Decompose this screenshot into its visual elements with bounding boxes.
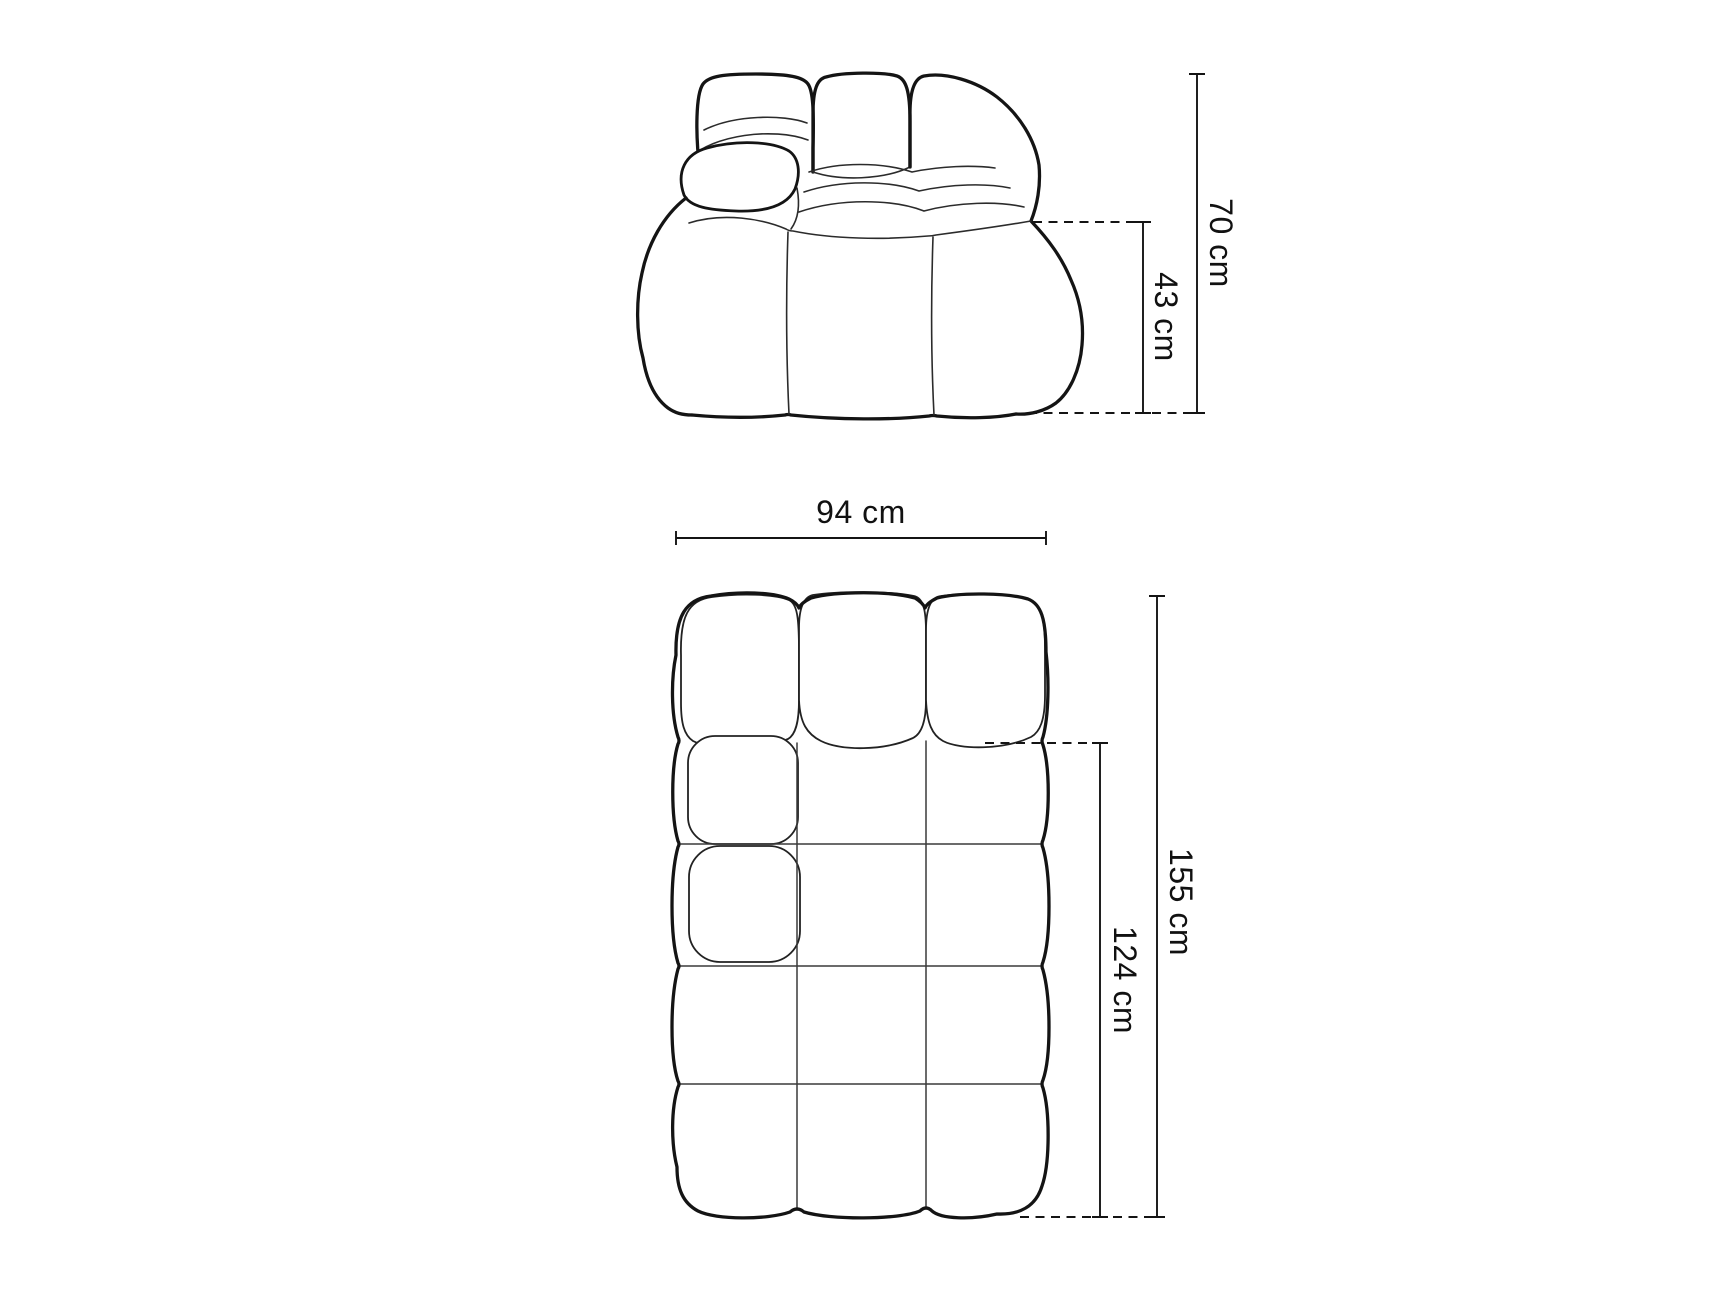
dimension-line-70: [1189, 74, 1205, 413]
dimension-label-70cm: 70 cm: [1203, 198, 1239, 288]
back-cushion-middle: [813, 73, 910, 172]
dimension-drawing: 70 cm 43 cm 94 cm: [0, 0, 1732, 1299]
dimension-line-155: [1149, 596, 1165, 1217]
seat-roll-2: [804, 183, 1010, 192]
seat-divider-right: [932, 237, 934, 415]
dimension-width: 94 cm: [676, 494, 1046, 545]
dimension-label-124cm: 124 cm: [1107, 926, 1143, 1034]
front-elevation-view: 70 cm 43 cm: [638, 73, 1239, 419]
seat-roll-3: [799, 202, 1024, 212]
seat-divider-left: [787, 232, 789, 414]
dimension-total-depth: 155 cm: [1149, 596, 1199, 1217]
armrest-tuft-line-1: [704, 117, 807, 130]
plan-back-cushion-left: [681, 595, 799, 749]
plan-armrest-pad-1: [688, 736, 798, 844]
dimension-line-124: [1092, 743, 1108, 1217]
dimension-label-94cm: 94 cm: [816, 494, 906, 530]
plan-back-cushion-right: [926, 594, 1045, 747]
plan-armrest-pad-2: [689, 846, 800, 962]
dimension-total-height: 70 cm: [1189, 74, 1239, 413]
seat-left-silhouette: [638, 198, 692, 415]
back-cushion-right-and-right-side: [910, 75, 1083, 414]
dimension-line-94: [676, 531, 1046, 545]
plan-back-cushion-middle: [799, 592, 926, 748]
dimension-label-155cm: 155 cm: [1163, 848, 1199, 956]
armrest: [681, 143, 798, 211]
seat-bottom-edge: [692, 414, 1016, 419]
dimension-label-43cm: 43 cm: [1148, 272, 1184, 362]
back-cushion-middle-bottom: [813, 167, 910, 178]
dimension-seat-depth: 124 cm: [985, 743, 1157, 1217]
top-plan-view: 94 cm 155 cm 124 cm: [672, 494, 1199, 1218]
seat-top-crease: [689, 217, 1031, 238]
